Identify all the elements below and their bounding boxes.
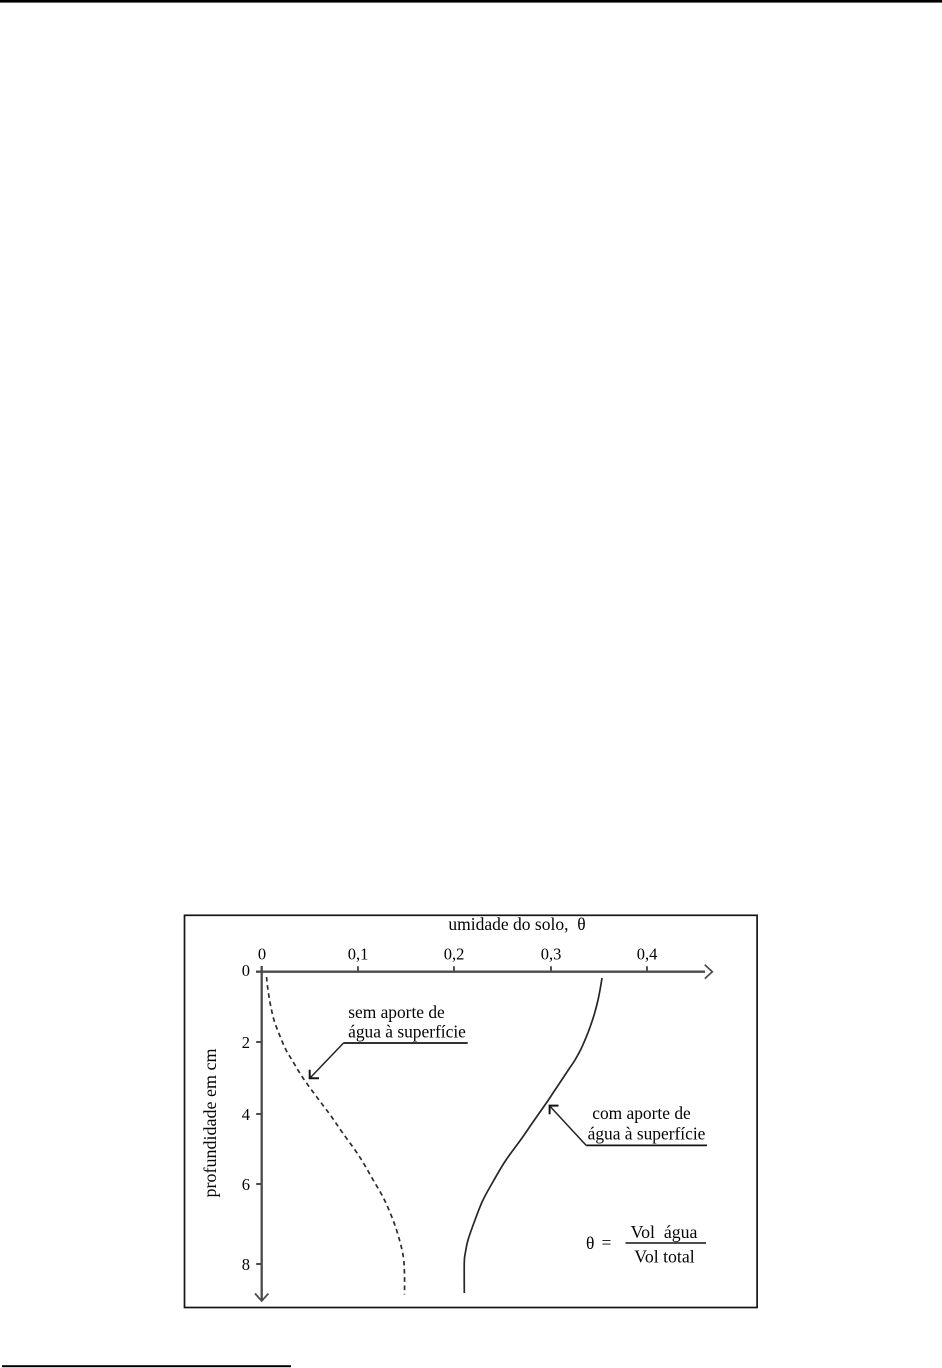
svg-text:Vol total: Vol total bbox=[634, 1247, 694, 1267]
svg-text:com aporte de: com aporte de bbox=[592, 1103, 691, 1123]
svg-text:Vol água: Vol água bbox=[631, 1222, 698, 1242]
svg-text:θ: θ bbox=[586, 1233, 594, 1253]
svg-text:6: 6 bbox=[242, 1175, 250, 1194]
svg-text:0,2: 0,2 bbox=[444, 945, 465, 964]
svg-text:0: 0 bbox=[242, 961, 250, 980]
svg-text:4: 4 bbox=[242, 1105, 250, 1124]
svg-text:sem aporte de: sem aporte de bbox=[348, 1002, 445, 1022]
svg-text:=: = bbox=[602, 1233, 612, 1253]
svg-text:0,1: 0,1 bbox=[348, 945, 369, 964]
svg-text:0,4: 0,4 bbox=[637, 945, 658, 964]
svg-text:2: 2 bbox=[242, 1033, 250, 1052]
svg-text:profundidade em cm: profundidade em cm bbox=[200, 1049, 220, 1198]
svg-text:0,3: 0,3 bbox=[541, 945, 562, 964]
svg-text:umidade do solo, θ: umidade do solo, θ bbox=[448, 914, 585, 934]
svg-text:8: 8 bbox=[242, 1255, 250, 1274]
svg-text:água à superfície: água à superfície bbox=[588, 1124, 706, 1144]
svg-text:água à superfície: água à superfície bbox=[348, 1022, 466, 1042]
svg-text:0: 0 bbox=[258, 945, 266, 964]
